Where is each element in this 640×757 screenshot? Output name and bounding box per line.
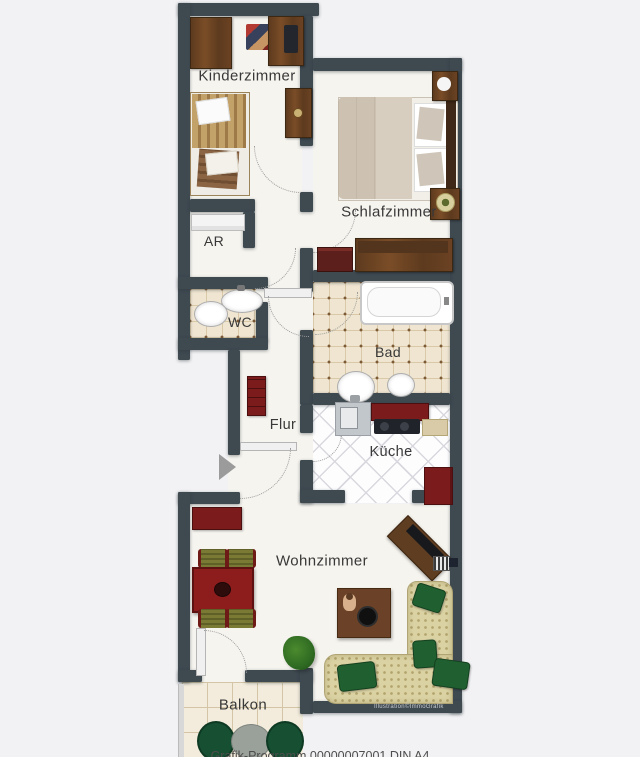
bad-toilet bbox=[387, 373, 415, 397]
wall-kinderzimmer-right-stub bbox=[300, 192, 313, 212]
kinderzimmer-laptop bbox=[284, 25, 298, 53]
radiator bbox=[433, 556, 450, 571]
wall-kueche-left-upper bbox=[300, 405, 313, 433]
figurine-hair bbox=[346, 593, 353, 600]
schlafzimmer-pillow-top-inner bbox=[416, 107, 444, 141]
bathtub-inner bbox=[367, 287, 441, 317]
kueche-counter-beige bbox=[422, 419, 448, 436]
bathtub-faucet bbox=[444, 297, 449, 305]
dining-table-bowl bbox=[214, 582, 231, 597]
kueche-sink-basin bbox=[340, 407, 358, 429]
room-label-schlafzimmer: Schlafzimmer bbox=[341, 204, 437, 221]
kueche-burner-left bbox=[380, 422, 389, 431]
wall-kueche-bottom-a bbox=[300, 490, 345, 503]
wall-flur-left bbox=[228, 350, 240, 455]
schlafzimmer-lamp bbox=[437, 77, 451, 91]
balkon-railing bbox=[178, 684, 184, 757]
schlafzimmer-pillow-bottom-inner bbox=[416, 152, 444, 186]
caption: Grafik-Programm 00000007001 DIN A4 bbox=[211, 749, 430, 757]
radiator-valve bbox=[449, 558, 458, 567]
wc-sink-faucet bbox=[237, 285, 245, 291]
kinderzimmer-wardrobe bbox=[190, 17, 232, 69]
schlafzimmer-dresser bbox=[317, 247, 353, 272]
wall-wc-bottom bbox=[178, 338, 268, 350]
sofa-pillow-left bbox=[336, 661, 377, 692]
wall-step-vertical bbox=[300, 668, 313, 714]
dining-chair-bottom-right bbox=[226, 609, 256, 628]
kinderzimmer-pillow bbox=[195, 97, 230, 125]
room-label-kueche: Küche bbox=[369, 444, 412, 460]
wall-left-upper bbox=[178, 3, 190, 360]
wall-schlafzimmer-top bbox=[313, 58, 462, 71]
room-label-kinderzimmer: Kinderzimmer bbox=[198, 68, 295, 85]
kueche-cabinet-red bbox=[424, 467, 453, 505]
illustration-credit: Illustration©ImmoGrafik bbox=[374, 704, 444, 710]
room-label-bad: Bad bbox=[375, 344, 401, 360]
room-label-wc: WC bbox=[228, 314, 252, 330]
kinderzimmer-sheet bbox=[205, 150, 239, 175]
kueche-burner-right bbox=[400, 422, 409, 431]
dining-chair-top-right bbox=[226, 549, 256, 568]
room-label-wohnzimmer: Wohnzimmer bbox=[276, 553, 368, 570]
room-label-balkon: Balkon bbox=[219, 697, 267, 714]
schlafzimmer-duvet-fold bbox=[376, 97, 412, 199]
wall-wohnzimmer-left bbox=[178, 492, 190, 682]
schlafzimmer-wardrobe-top bbox=[358, 241, 448, 253]
schlafzimmer-headboard bbox=[446, 95, 456, 201]
wall-top bbox=[178, 3, 319, 16]
dining-chair-bottom-left bbox=[198, 609, 228, 628]
wall-kinderzimmer-bottom bbox=[190, 199, 255, 212]
schlafzimmer-plant-pot bbox=[436, 193, 455, 212]
plant bbox=[283, 636, 315, 670]
sofa-pillow-corner bbox=[431, 658, 471, 691]
room-label-flur: Flur bbox=[270, 417, 297, 433]
flur-shelf bbox=[247, 376, 266, 416]
wall-flur-bad bbox=[300, 330, 313, 405]
wohnzimmer-sideboard bbox=[192, 507, 242, 530]
coffee-table-bowl bbox=[357, 606, 378, 627]
dining-chair-top-left bbox=[198, 549, 228, 568]
ar-shelf bbox=[191, 214, 245, 231]
floorplan-page: Kinderzimmer Schlafzimmer AR WC Bad Flur… bbox=[0, 0, 640, 757]
entrance-arrow-icon bbox=[219, 454, 236, 480]
room-label-ar: AR bbox=[204, 233, 224, 249]
wc-toilet bbox=[194, 301, 228, 327]
bad-sink-faucet bbox=[350, 395, 360, 402]
kinderzimmer-shelf-knob bbox=[293, 108, 303, 118]
wall-flur-schlafzimmer bbox=[300, 248, 313, 292]
